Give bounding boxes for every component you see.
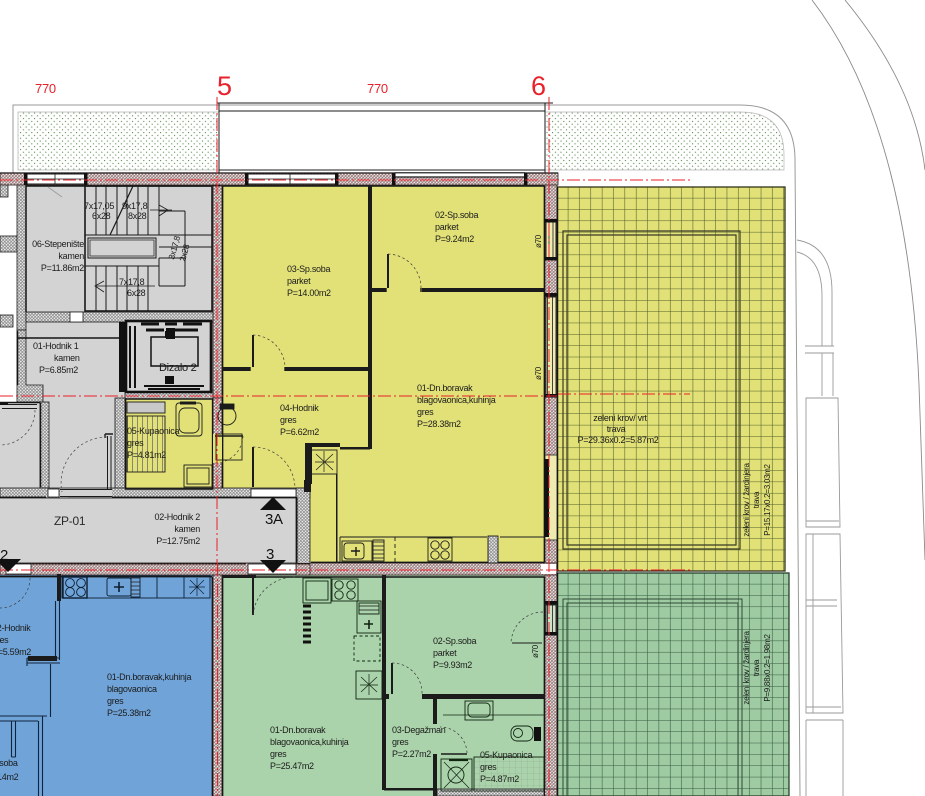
svg-text:02-Hodnik: 02-Hodnik bbox=[0, 623, 31, 633]
svg-text:ø70: ø70 bbox=[531, 644, 540, 658]
svg-text:trava: trava bbox=[752, 491, 761, 508]
svg-text:gres: gres bbox=[480, 762, 497, 772]
svg-text:01-Dn.boravak: 01-Dn.boravak bbox=[270, 725, 326, 735]
svg-text:Dizalo 2: Dizalo 2 bbox=[159, 362, 197, 374]
svg-text:P=25.47m2: P=25.47m2 bbox=[270, 761, 314, 771]
svg-text:14m2: 14m2 bbox=[0, 772, 19, 782]
svg-text:trava: trava bbox=[752, 659, 761, 676]
svg-text:.soba: .soba bbox=[0, 758, 18, 768]
svg-text:gres: gres bbox=[417, 407, 434, 417]
svg-text:kamen: kamen bbox=[174, 524, 200, 534]
svg-text:parket: parket bbox=[287, 276, 311, 286]
svg-text:P=9.88x0.2=1.98m2: P=9.88x0.2=1.98m2 bbox=[763, 634, 772, 702]
svg-text:5: 5 bbox=[217, 71, 232, 101]
svg-text:02-Sp.soba: 02-Sp.soba bbox=[433, 636, 477, 646]
svg-text:P=6.62m2: P=6.62m2 bbox=[280, 427, 319, 437]
svg-text:7x17,8: 7x17,8 bbox=[119, 277, 145, 287]
svg-text:gres: gres bbox=[270, 749, 287, 759]
svg-text:P=15.17x0.2=3.03m2: P=15.17x0.2=3.03m2 bbox=[763, 463, 772, 535]
svg-text:ø70: ø70 bbox=[534, 366, 543, 380]
svg-text:kamen: kamen bbox=[58, 251, 84, 261]
svg-text:P=9.24m2: P=9.24m2 bbox=[435, 234, 474, 244]
svg-text:gres: gres bbox=[107, 696, 124, 706]
svg-text:P=12.75m2: P=12.75m2 bbox=[156, 536, 200, 546]
svg-text:kamen: kamen bbox=[54, 353, 80, 363]
svg-text:03-Degažman: 03-Degažman bbox=[392, 725, 446, 735]
svg-text:P=2.27m2: P=2.27m2 bbox=[392, 749, 431, 759]
svg-text:gres: gres bbox=[280, 415, 297, 425]
svg-text:6x28: 6x28 bbox=[92, 211, 111, 221]
svg-text:02-Hodnik 2: 02-Hodnik 2 bbox=[155, 512, 201, 522]
svg-text:P=29.36x0.2=5.87m2: P=29.36x0.2=5.87m2 bbox=[577, 435, 658, 445]
svg-text:gres: gres bbox=[0, 635, 9, 645]
svg-text:ø70: ø70 bbox=[534, 234, 543, 248]
svg-text:P=6.85m2: P=6.85m2 bbox=[39, 365, 78, 375]
svg-text:03-Sp.soba: 03-Sp.soba bbox=[287, 264, 331, 274]
svg-text:05-Kupaonica: 05-Kupaonica bbox=[127, 426, 179, 436]
svg-text:zeleni krov / žardinjera: zeleni krov / žardinjera bbox=[742, 463, 751, 537]
svg-text:06-Stepenište: 06-Stepenište bbox=[32, 239, 84, 249]
svg-text:P=14.00m2: P=14.00m2 bbox=[287, 288, 331, 298]
svg-text:ZP-01: ZP-01 bbox=[54, 514, 86, 528]
svg-text:blagovaonica: blagovaonica bbox=[107, 684, 157, 694]
svg-text:P=9.93m2: P=9.93m2 bbox=[433, 660, 472, 670]
svg-text:P=4.81m2: P=4.81m2 bbox=[127, 450, 166, 460]
svg-text:parket: parket bbox=[433, 648, 457, 658]
svg-text:parket: parket bbox=[435, 222, 459, 232]
svg-text:01-Dn.boravak: 01-Dn.boravak bbox=[417, 383, 473, 393]
svg-text:gres: gres bbox=[127, 438, 144, 448]
svg-text:zeleni krov/ vrt: zeleni krov/ vrt bbox=[593, 413, 647, 423]
svg-text:01-Hodnik 1: 01-Hodnik 1 bbox=[33, 341, 79, 351]
svg-text:01-Dn.boravak,kuhinja: 01-Dn.boravak,kuhinja bbox=[107, 672, 191, 682]
svg-text:zeleni krov / žardinjera: zeleni krov / žardinjera bbox=[742, 631, 751, 705]
svg-text:P=4.87m2: P=4.87m2 bbox=[480, 774, 519, 784]
svg-text:04-Hodnik: 04-Hodnik bbox=[280, 403, 319, 413]
svg-text:P=5.59m2: P=5.59m2 bbox=[0, 647, 31, 657]
svg-text:gres: gres bbox=[392, 737, 409, 747]
svg-text:9x17,8: 9x17,8 bbox=[122, 201, 148, 211]
svg-text:02-Sp.soba: 02-Sp.soba bbox=[435, 210, 479, 220]
svg-text:6x28: 6x28 bbox=[127, 288, 146, 298]
svg-text:P=25.38m2: P=25.38m2 bbox=[107, 708, 151, 718]
svg-text:trava: trava bbox=[607, 424, 626, 434]
svg-text:P=28.38m2: P=28.38m2 bbox=[417, 419, 461, 429]
svg-text:770: 770 bbox=[35, 81, 56, 96]
svg-text:7x17,05: 7x17,05 bbox=[84, 201, 114, 211]
svg-text:blagovaonica,kuhinja: blagovaonica,kuhinja bbox=[270, 737, 349, 747]
svg-text:770: 770 bbox=[367, 81, 388, 96]
svg-text:3A: 3A bbox=[265, 511, 283, 528]
svg-text:8x28: 8x28 bbox=[128, 211, 147, 221]
svg-text:6: 6 bbox=[531, 71, 546, 101]
svg-text:05-Kupaonica: 05-Kupaonica bbox=[480, 750, 532, 760]
svg-text:P=11.86m2: P=11.86m2 bbox=[41, 263, 84, 273]
